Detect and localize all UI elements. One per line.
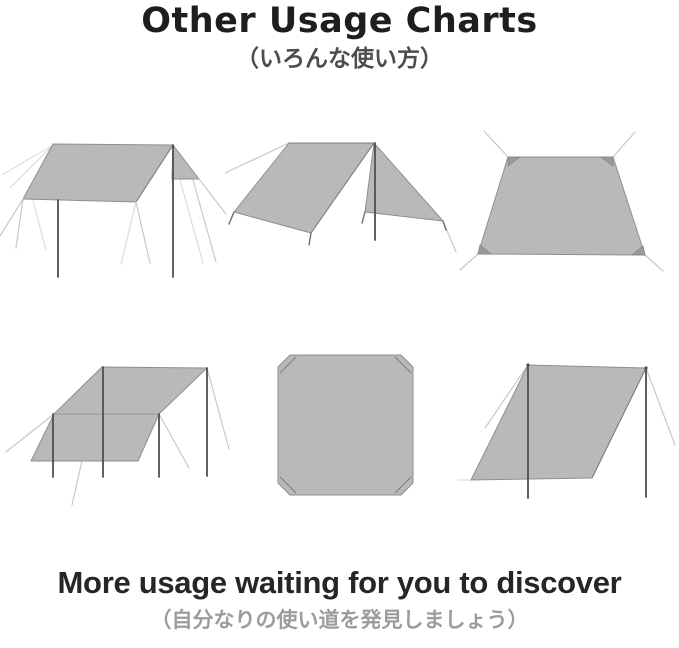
sloped-awning-tarp-diagram [0, 355, 240, 520]
footer-subheading-japanese: （自分なりの使い道を発見しましょう） [0, 608, 679, 632]
wind-break-tarp-diagram [450, 355, 679, 505]
flat-square-tarp-diagram [240, 345, 450, 505]
footer-heading: More usage waiting for you to discover [0, 565, 679, 600]
flat-roof-tarp-diagram [0, 130, 232, 290]
header: Other Usage Charts （いろんな使い方） [0, 0, 679, 72]
tarp-usage-infographic: Other Usage Charts （いろんな使い方） [0, 0, 679, 648]
footer: More usage waiting for you to discover （… [0, 565, 679, 632]
page-subtitle-japanese: （いろんな使い方） [0, 46, 679, 72]
a-frame-tarp-diagram [225, 128, 460, 293]
page-title: Other Usage Charts [0, 0, 679, 41]
ground-sheet-diagram [450, 118, 679, 278]
